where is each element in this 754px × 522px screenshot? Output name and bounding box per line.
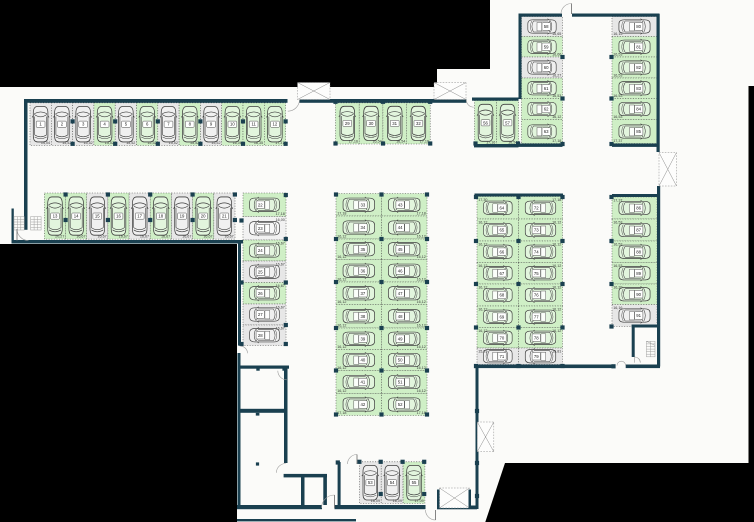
svg-text:16,67: 16,67 bbox=[182, 235, 191, 239]
svg-text:63: 63 bbox=[544, 129, 549, 134]
svg-text:17,37: 17,37 bbox=[275, 141, 284, 145]
svg-text:17,18: 17,18 bbox=[417, 211, 426, 215]
svg-text:66: 66 bbox=[500, 249, 505, 254]
svg-text:80: 80 bbox=[636, 24, 641, 29]
svg-text:16,12: 16,12 bbox=[417, 323, 426, 327]
svg-text:13: 13 bbox=[53, 214, 58, 219]
svg-text:15,52: 15,52 bbox=[169, 141, 178, 145]
svg-text:60: 60 bbox=[544, 65, 549, 70]
svg-text:16,12: 16,12 bbox=[478, 286, 487, 290]
svg-text:65: 65 bbox=[500, 228, 505, 233]
svg-text:16,20: 16,20 bbox=[613, 286, 622, 290]
svg-text:59: 59 bbox=[544, 44, 549, 49]
svg-text:16,12: 16,12 bbox=[337, 234, 346, 238]
svg-text:55: 55 bbox=[412, 480, 417, 485]
svg-text:16,16: 16,16 bbox=[613, 306, 622, 310]
svg-text:16,53: 16,53 bbox=[613, 115, 622, 119]
svg-text:71: 71 bbox=[500, 354, 505, 359]
svg-text:20,27: 20,27 bbox=[55, 235, 64, 239]
svg-text:12: 12 bbox=[273, 122, 278, 127]
svg-text:77: 77 bbox=[534, 314, 539, 319]
svg-text:16,12: 16,12 bbox=[337, 300, 346, 304]
svg-text:15,52: 15,52 bbox=[105, 141, 114, 145]
svg-text:90: 90 bbox=[636, 292, 641, 297]
svg-text:68: 68 bbox=[500, 293, 505, 298]
svg-text:91: 91 bbox=[636, 313, 641, 318]
svg-text:42: 42 bbox=[361, 402, 366, 407]
svg-text:17,09: 17,09 bbox=[414, 499, 423, 503]
svg-text:15,52: 15,52 bbox=[211, 141, 220, 145]
svg-text:16,53: 16,53 bbox=[613, 243, 622, 247]
svg-text:62: 62 bbox=[544, 107, 549, 112]
svg-text:16,27: 16,27 bbox=[552, 73, 561, 77]
svg-text:52: 52 bbox=[398, 402, 403, 407]
svg-text:21: 21 bbox=[222, 214, 227, 219]
svg-text:15: 15 bbox=[95, 214, 100, 219]
svg-text:16,12: 16,12 bbox=[337, 255, 346, 259]
svg-text:17: 17 bbox=[137, 214, 142, 219]
svg-text:17,16: 17,16 bbox=[486, 140, 495, 144]
svg-text:19: 19 bbox=[180, 214, 185, 219]
svg-text:16,67: 16,67 bbox=[276, 263, 285, 267]
svg-text:17,18: 17,18 bbox=[337, 211, 346, 215]
svg-text:78: 78 bbox=[534, 335, 539, 340]
svg-text:16,12: 16,12 bbox=[478, 264, 487, 268]
svg-text:17,18: 17,18 bbox=[276, 212, 285, 216]
svg-text:16,06: 16,06 bbox=[233, 141, 242, 145]
svg-text:16,09: 16,09 bbox=[393, 499, 402, 503]
svg-text:10: 10 bbox=[230, 122, 235, 127]
svg-text:16,12: 16,12 bbox=[478, 329, 487, 333]
svg-text:64: 64 bbox=[500, 205, 505, 210]
svg-text:39: 39 bbox=[361, 336, 366, 341]
svg-text:15,81: 15,81 bbox=[552, 350, 561, 354]
svg-text:16,12: 16,12 bbox=[417, 300, 426, 304]
svg-text:17,18: 17,18 bbox=[417, 411, 426, 415]
svg-text:15,52: 15,52 bbox=[147, 141, 156, 145]
svg-text:16,12: 16,12 bbox=[552, 286, 561, 290]
svg-text:16,67: 16,67 bbox=[276, 242, 285, 246]
svg-text:17,37: 17,37 bbox=[613, 139, 622, 143]
svg-text:16,12: 16,12 bbox=[417, 366, 426, 370]
svg-text:57: 57 bbox=[505, 120, 510, 125]
svg-text:11: 11 bbox=[251, 122, 256, 127]
svg-text:17,18: 17,18 bbox=[552, 198, 561, 202]
svg-text:16,12: 16,12 bbox=[337, 366, 346, 370]
svg-text:29: 29 bbox=[345, 121, 350, 126]
svg-text:79: 79 bbox=[534, 354, 539, 359]
svg-text:41: 41 bbox=[361, 380, 366, 385]
svg-text:49: 49 bbox=[398, 336, 403, 341]
svg-text:16,53: 16,53 bbox=[613, 52, 622, 56]
svg-text:84: 84 bbox=[636, 107, 641, 112]
svg-text:16,67: 16,67 bbox=[224, 235, 233, 239]
svg-text:16,12: 16,12 bbox=[552, 329, 561, 333]
svg-text:17,30: 17,30 bbox=[478, 198, 487, 202]
svg-text:16,67: 16,67 bbox=[276, 306, 285, 310]
svg-text:51: 51 bbox=[398, 380, 403, 385]
svg-text:27: 27 bbox=[258, 312, 263, 317]
svg-text:22: 22 bbox=[258, 202, 263, 207]
svg-text:17,16: 17,16 bbox=[349, 139, 358, 143]
svg-text:70: 70 bbox=[500, 335, 505, 340]
svg-text:16,12: 16,12 bbox=[478, 243, 487, 247]
svg-text:83: 83 bbox=[636, 86, 641, 91]
svg-text:16,67: 16,67 bbox=[276, 284, 285, 288]
svg-text:54: 54 bbox=[390, 480, 395, 485]
svg-text:16,12: 16,12 bbox=[478, 221, 487, 225]
svg-text:14,04: 14,04 bbox=[41, 141, 50, 145]
svg-text:16,12: 16,12 bbox=[552, 221, 561, 225]
svg-text:16,53: 16,53 bbox=[613, 264, 622, 268]
svg-text:16,12: 16,12 bbox=[337, 277, 346, 281]
svg-text:15,52: 15,52 bbox=[62, 141, 71, 145]
svg-text:16,67: 16,67 bbox=[161, 235, 170, 239]
svg-text:88: 88 bbox=[636, 249, 641, 254]
svg-text:16,12: 16,12 bbox=[478, 308, 487, 312]
svg-text:47: 47 bbox=[398, 291, 403, 296]
svg-text:25: 25 bbox=[258, 269, 263, 274]
svg-text:89: 89 bbox=[636, 271, 641, 276]
svg-text:46: 46 bbox=[398, 268, 403, 273]
svg-text:16,12: 16,12 bbox=[417, 277, 426, 281]
svg-text:16,15: 16,15 bbox=[613, 32, 622, 36]
svg-text:16,67: 16,67 bbox=[76, 235, 85, 239]
svg-text:44: 44 bbox=[398, 225, 403, 230]
svg-text:16,09: 16,09 bbox=[371, 499, 380, 503]
svg-text:43: 43 bbox=[398, 202, 403, 207]
svg-text:85: 85 bbox=[636, 129, 641, 134]
svg-text:34: 34 bbox=[361, 225, 366, 230]
svg-text:24: 24 bbox=[258, 248, 263, 253]
svg-text:16,35: 16,35 bbox=[254, 141, 263, 145]
svg-text:16,12: 16,12 bbox=[337, 323, 346, 327]
svg-text:69: 69 bbox=[500, 314, 505, 319]
svg-text:48: 48 bbox=[398, 314, 403, 319]
svg-text:86: 86 bbox=[636, 206, 641, 211]
svg-text:16,67: 16,67 bbox=[276, 327, 285, 331]
svg-text:16: 16 bbox=[116, 214, 121, 219]
svg-text:87: 87 bbox=[636, 228, 641, 233]
svg-text:16,67: 16,67 bbox=[119, 235, 128, 239]
svg-text:16,67: 16,67 bbox=[97, 235, 106, 239]
svg-text:82: 82 bbox=[636, 65, 641, 70]
svg-text:38: 38 bbox=[361, 314, 366, 319]
svg-text:37: 37 bbox=[361, 291, 366, 296]
svg-text:35: 35 bbox=[361, 247, 366, 252]
svg-text:40: 40 bbox=[361, 358, 366, 363]
svg-text:16,12: 16,12 bbox=[552, 115, 561, 119]
svg-text:26: 26 bbox=[258, 291, 263, 296]
svg-text:16,12: 16,12 bbox=[337, 389, 346, 393]
svg-text:16,12: 16,12 bbox=[417, 255, 426, 259]
svg-text:61: 61 bbox=[544, 86, 549, 91]
svg-text:76: 76 bbox=[534, 293, 539, 298]
svg-text:16,12: 16,12 bbox=[552, 264, 561, 268]
svg-text:30: 30 bbox=[369, 121, 374, 126]
svg-text:36: 36 bbox=[361, 268, 366, 273]
svg-text:23: 23 bbox=[258, 226, 263, 231]
svg-text:16,12: 16,12 bbox=[337, 345, 346, 349]
svg-text:72: 72 bbox=[534, 205, 539, 210]
svg-text:16,65: 16,65 bbox=[552, 32, 561, 36]
svg-text:58: 58 bbox=[544, 24, 549, 29]
svg-text:16,12: 16,12 bbox=[417, 234, 426, 238]
svg-text:74: 74 bbox=[534, 249, 539, 254]
svg-text:16,53: 16,53 bbox=[613, 73, 622, 77]
svg-text:16,00: 16,00 bbox=[276, 218, 285, 222]
svg-text:17,16: 17,16 bbox=[420, 139, 429, 143]
svg-text:15,81: 15,81 bbox=[478, 350, 487, 354]
svg-text:16,12: 16,12 bbox=[417, 345, 426, 349]
svg-text:67: 67 bbox=[500, 271, 505, 276]
svg-text:32: 32 bbox=[416, 121, 421, 126]
svg-text:16,53: 16,53 bbox=[613, 221, 622, 225]
svg-text:56: 56 bbox=[483, 120, 488, 125]
svg-text:16,54: 16,54 bbox=[372, 139, 381, 143]
svg-text:53: 53 bbox=[368, 480, 373, 485]
svg-text:16,12: 16,12 bbox=[552, 243, 561, 247]
svg-text:16,67: 16,67 bbox=[203, 235, 212, 239]
svg-text:16,53: 16,53 bbox=[613, 94, 622, 98]
svg-text:14: 14 bbox=[74, 214, 79, 219]
svg-text:81: 81 bbox=[636, 44, 641, 49]
svg-text:15,52: 15,52 bbox=[190, 141, 199, 145]
svg-text:15,52: 15,52 bbox=[83, 141, 92, 145]
svg-text:18: 18 bbox=[158, 214, 163, 219]
svg-text:45: 45 bbox=[398, 247, 403, 252]
svg-text:31: 31 bbox=[392, 121, 397, 126]
svg-text:16,12: 16,12 bbox=[552, 308, 561, 312]
svg-text:17,18: 17,18 bbox=[337, 411, 346, 415]
svg-text:73: 73 bbox=[534, 228, 539, 233]
svg-text:17,37: 17,37 bbox=[613, 199, 622, 203]
svg-text:28: 28 bbox=[258, 333, 263, 338]
svg-text:50: 50 bbox=[398, 358, 403, 363]
svg-text:17,18: 17,18 bbox=[552, 139, 561, 143]
svg-text:33: 33 bbox=[361, 202, 366, 207]
svg-text:15,52: 15,52 bbox=[126, 141, 135, 145]
svg-text:16,54: 16,54 bbox=[396, 139, 405, 143]
svg-text:16,12: 16,12 bbox=[417, 389, 426, 393]
svg-text:16,53: 16,53 bbox=[552, 94, 561, 98]
svg-text:16,67: 16,67 bbox=[140, 235, 149, 239]
svg-text:75: 75 bbox=[534, 271, 539, 276]
svg-text:16,66: 16,66 bbox=[552, 52, 561, 56]
svg-text:20: 20 bbox=[201, 214, 206, 219]
